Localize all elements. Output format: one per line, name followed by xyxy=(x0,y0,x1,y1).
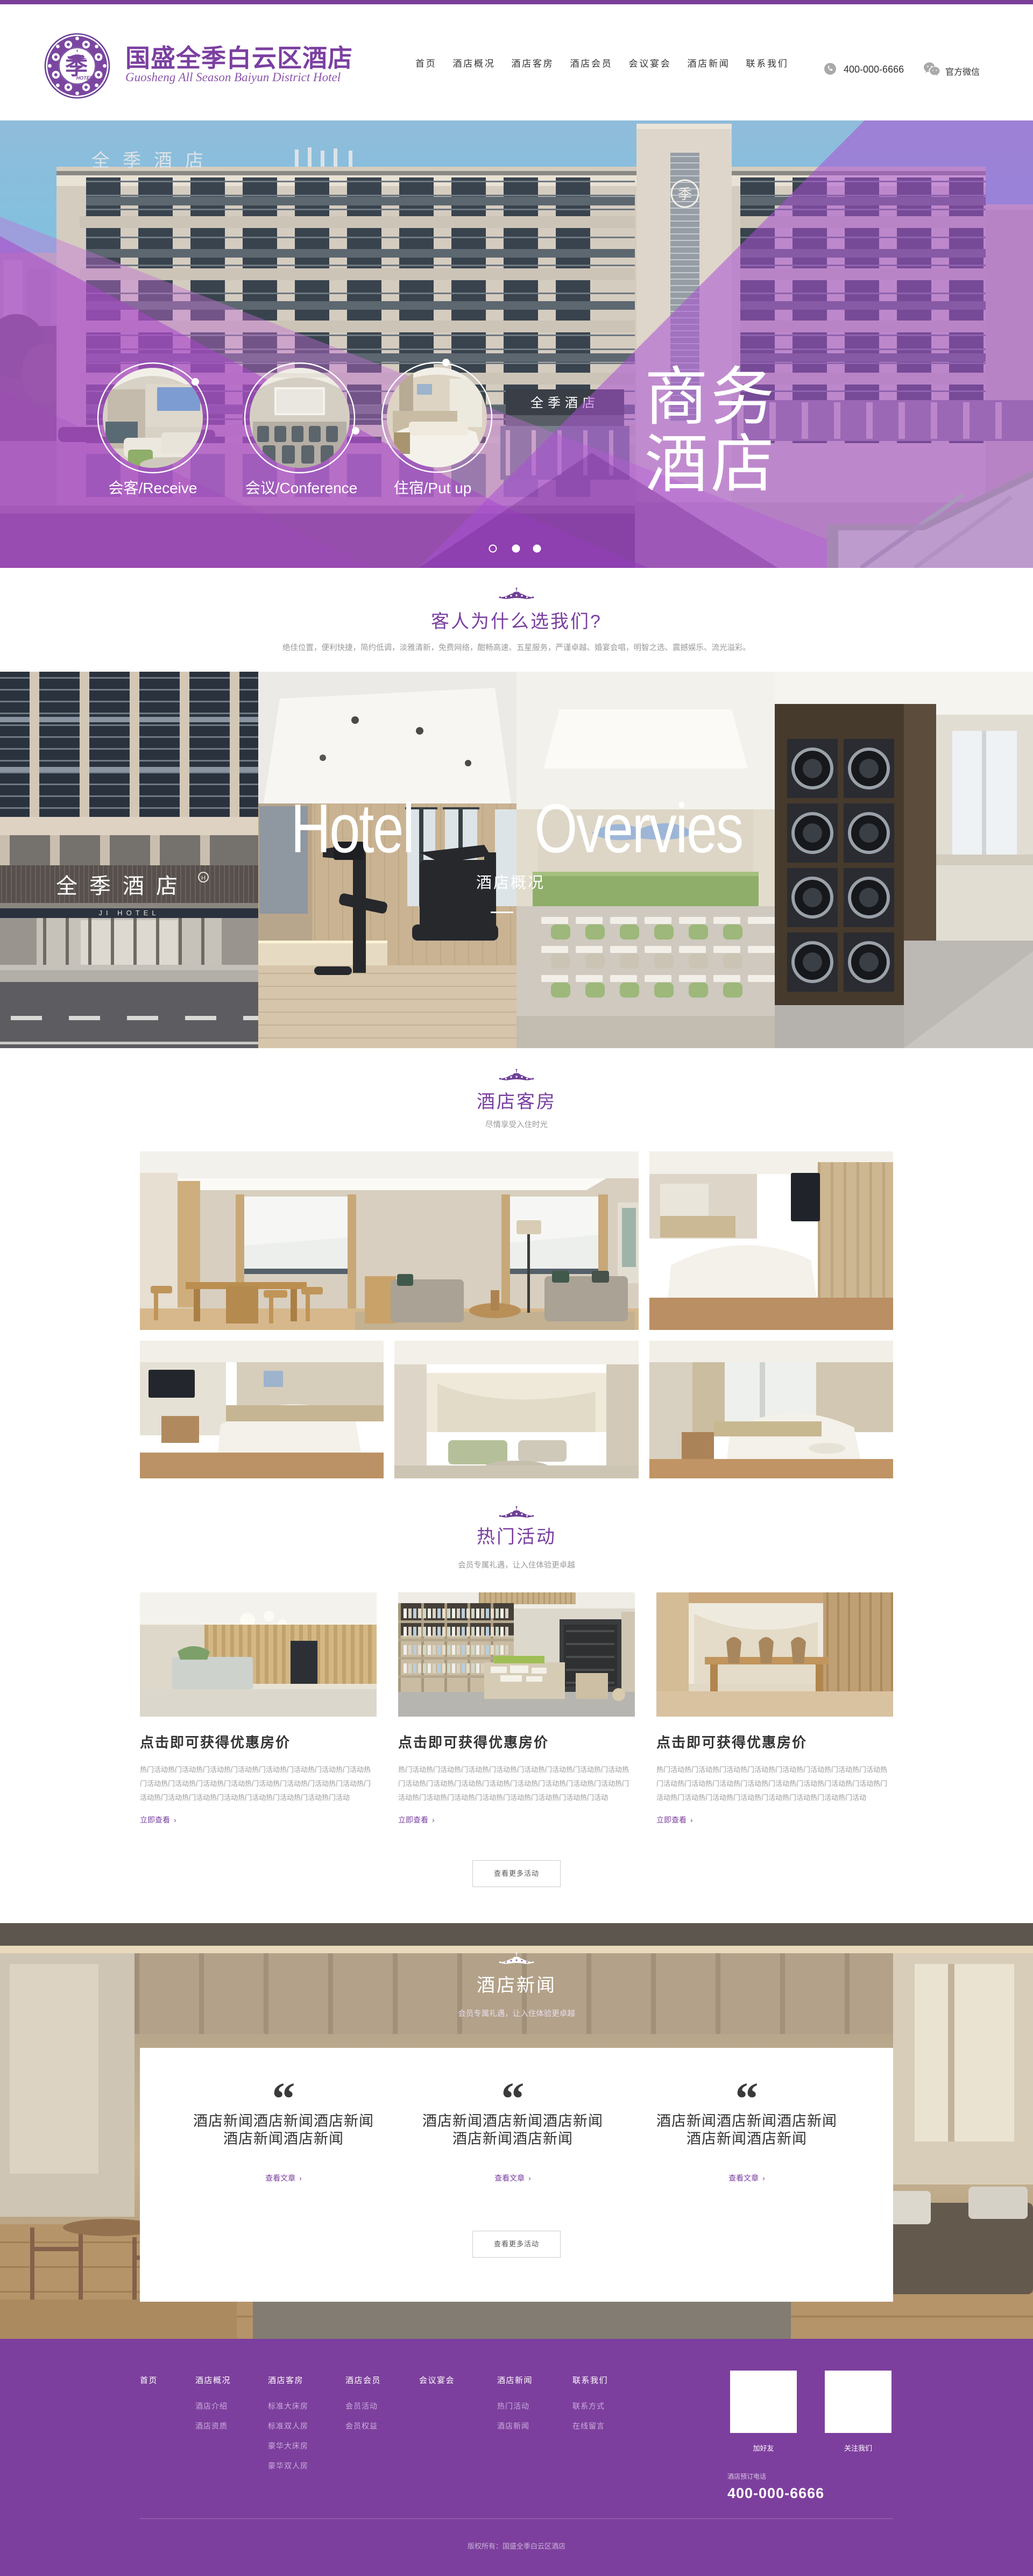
svg-text:全季酒店: 全季酒店 xyxy=(56,874,189,898)
svg-text:酒店: 酒店 xyxy=(645,429,777,500)
svg-text:JI HOTEL: JI HOTEL xyxy=(98,909,159,917)
svg-text:H: H xyxy=(201,875,206,881)
svg-text:会客/Receive: 会客/Receive xyxy=(109,480,197,496)
svg-text:HOTEL: HOTEL xyxy=(76,75,93,81)
svg-text:全季酒店: 全季酒店 xyxy=(91,151,216,171)
svg-text:季: 季 xyxy=(678,186,692,202)
svg-text:住宿/Put up: 住宿/Put up xyxy=(394,480,472,496)
svg-text:会议/Conference: 会议/Conference xyxy=(245,480,358,496)
svg-text:商务: 商务 xyxy=(645,362,777,433)
